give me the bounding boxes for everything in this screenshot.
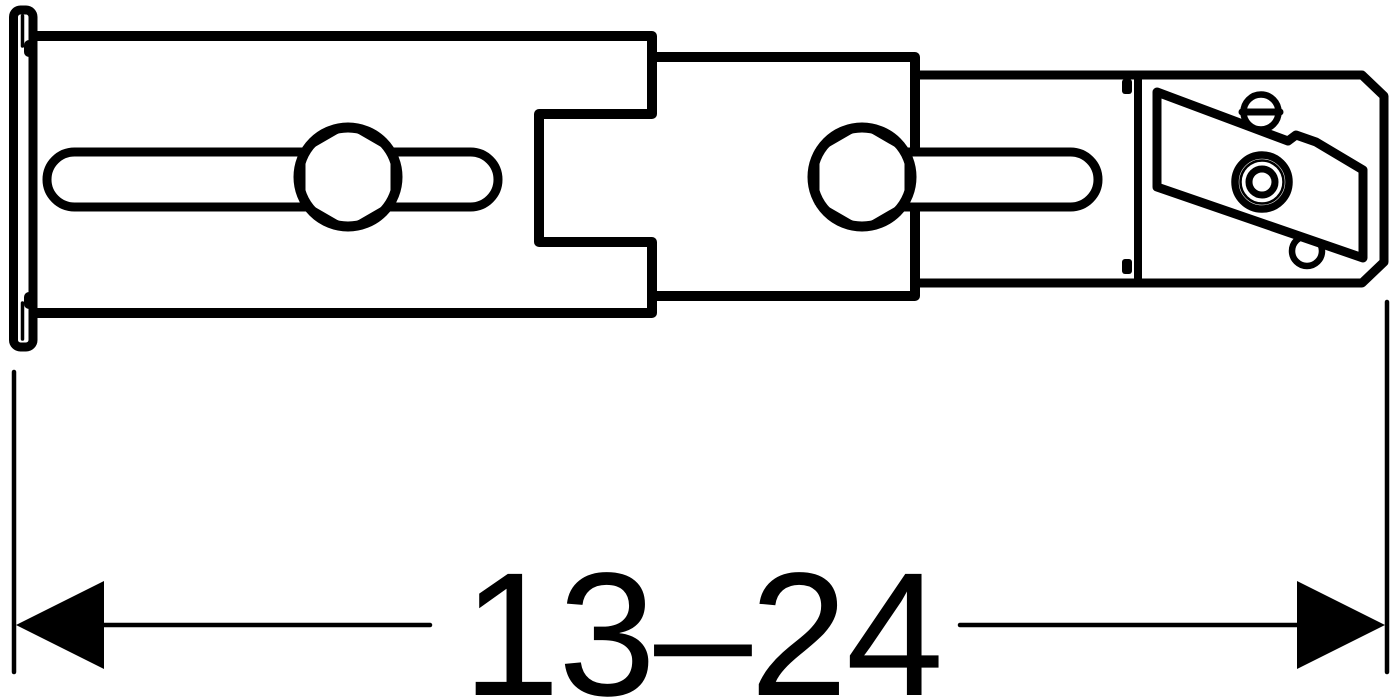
- diagram-canvas: 13–24: [0, 0, 1400, 699]
- adjustment-slot-left: [47, 152, 498, 207]
- bracket-technical-drawing: 13–24: [0, 0, 1400, 699]
- snap-tab-top: [1122, 79, 1132, 94]
- flange-clip-bottom-foot: [24, 292, 35, 309]
- bushing-inner-ring: [1249, 169, 1275, 195]
- dimension-label: 13–24: [462, 537, 941, 699]
- flange-clip-top-foot: [24, 40, 35, 57]
- snap-tab-bottom: [1122, 259, 1132, 274]
- mounting-flange: [14, 10, 36, 347]
